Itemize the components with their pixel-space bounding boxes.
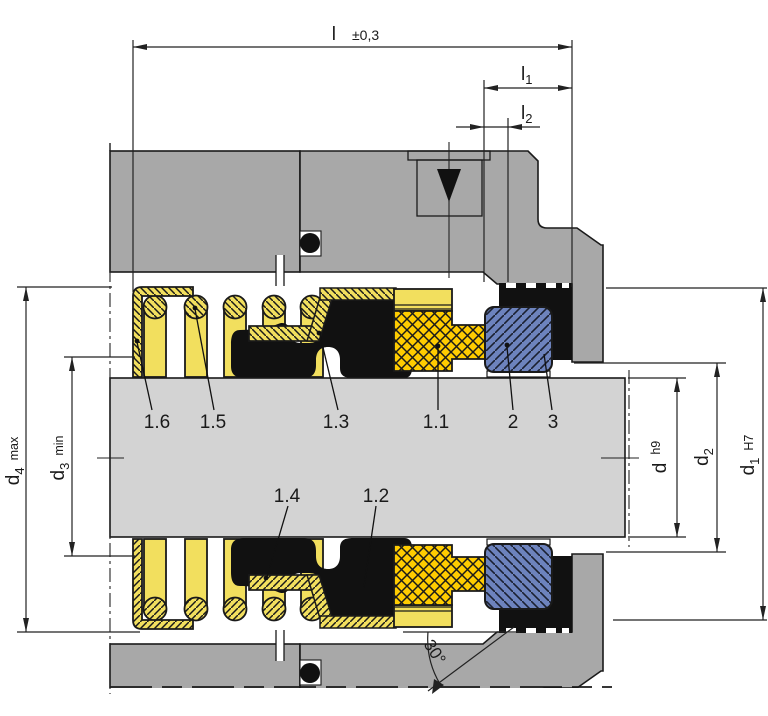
leader-dot [436, 344, 441, 349]
seal-drawing-canvas: l ±0,3 l1 l2 d4max d3min [0, 0, 768, 716]
part-label-3: 3 [548, 412, 559, 433]
technical-drawing: l ±0,3 l1 l2 d4max d3min [0, 0, 768, 716]
shaft [110, 378, 625, 537]
leader-dot [193, 306, 198, 311]
part-label-1-2: 1.2 [363, 486, 389, 507]
part-label-1-4: 1.4 [274, 486, 301, 507]
break-mask [0, 688, 768, 716]
leader-dot [505, 343, 510, 348]
dim-l-tolerance: ±0,3 [352, 27, 379, 43]
part-label-1-1: 1.1 [423, 412, 449, 433]
dim-l-label: l [332, 24, 336, 45]
part-label-1-3: 1.3 [323, 412, 349, 433]
leader-dot [135, 339, 140, 344]
leader-dot [264, 576, 269, 581]
part-label-2: 2 [508, 412, 519, 433]
part-label-1-5: 1.5 [200, 412, 226, 433]
part-label-1-6: 1.6 [144, 412, 170, 433]
leader-dot [317, 331, 322, 336]
